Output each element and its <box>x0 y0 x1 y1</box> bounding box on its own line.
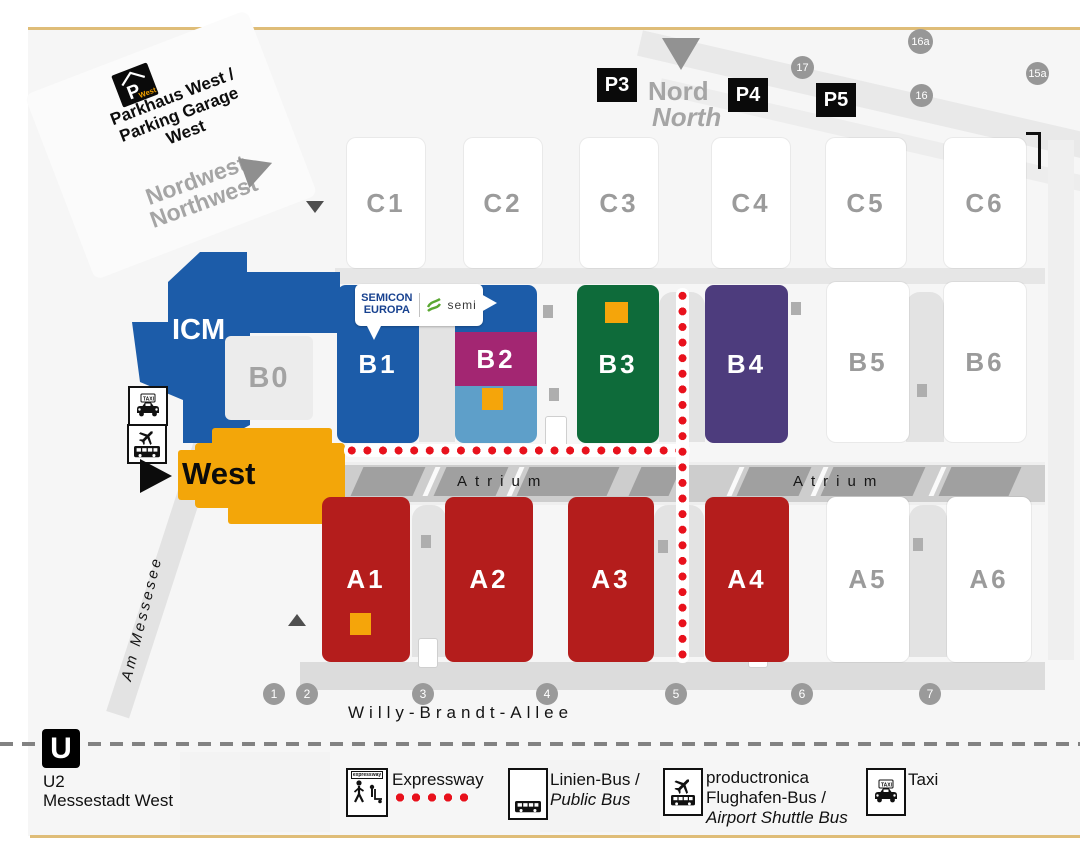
street-marker-5[interactable]: 5 <box>665 683 687 705</box>
hall-a6[interactable]: A6 <box>947 497 1031 662</box>
airplane-icon <box>673 777 693 794</box>
semicon-wordmark: SEMICON EUROPA <box>361 293 412 316</box>
north-arrow-icon <box>662 38 700 70</box>
hall-c3[interactable]: C3 <box>580 138 658 268</box>
street-marker-1[interactable]: 1 <box>263 683 285 705</box>
bus-icon <box>134 446 160 459</box>
airport-shuttle-legend-icon[interactable] <box>663 768 703 816</box>
hall-c2[interactable]: C2 <box>464 138 542 268</box>
public-bus-label-de: Linien-Bus / <box>550 770 640 790</box>
parking-badge-p4[interactable]: P4 <box>728 78 768 112</box>
gate-marker-16a[interactable]: 16a <box>908 29 933 54</box>
semi-swirl-icon <box>426 297 442 313</box>
street-marker-4[interactable]: 4 <box>536 683 558 705</box>
street-marker-6[interactable]: 6 <box>791 683 813 705</box>
pillar-decoration <box>658 540 668 553</box>
subway-logo[interactable]: U <box>42 729 80 768</box>
svg-text:TAXI: TAXI <box>143 397 155 403</box>
hall-b6[interactable]: B6 <box>944 282 1026 442</box>
event-marker-square-b2 <box>482 388 503 410</box>
expressway-figures <box>351 779 383 805</box>
pillar-decoration <box>917 384 927 397</box>
bus-icon <box>514 801 542 814</box>
cb-row-gap-band <box>335 268 1045 284</box>
expressway-legend-dots <box>392 792 472 803</box>
hall-a3[interactable]: A3 <box>568 497 654 662</box>
semi-wordmark: semi <box>448 298 477 312</box>
airplane-icon <box>137 429 157 445</box>
gate-marker-16[interactable]: 16 <box>910 84 933 107</box>
taxi-stand-icon[interactable]: TAXI <box>128 386 168 426</box>
street-willy-brandt-allee: Willy-Brandt-Allee <box>348 703 573 723</box>
logo-bubble-tail-right <box>481 294 497 312</box>
logo-bubble-tail-down <box>366 324 382 340</box>
pillar-decoration <box>549 388 559 401</box>
hall-gap-arch <box>906 292 944 442</box>
pillar-decoration <box>913 538 923 551</box>
hall-c6[interactable]: C6 <box>944 138 1026 268</box>
entrance-north-en: North <box>652 102 721 133</box>
atrium-panel <box>351 467 426 496</box>
street-marker-3[interactable]: 3 <box>412 683 434 705</box>
atrium-panel <box>939 467 1022 496</box>
hall-a2[interactable]: A2 <box>445 497 533 662</box>
pedestrian-icon <box>351 779 367 805</box>
parking-badge-p5[interactable]: P5 <box>816 83 856 117</box>
expressway-line-vertical <box>676 288 689 663</box>
facility-marker <box>418 638 438 668</box>
hall-c1[interactable]: C1 <box>347 138 425 268</box>
hall-b5[interactable]: B5 <box>827 282 909 442</box>
background-building <box>180 752 330 832</box>
public-bus-legend-icon[interactable] <box>508 768 548 820</box>
fairground-map: P West Parkhaus West / Parking Garage We… <box>0 0 1080 848</box>
west-building-bottom <box>228 506 336 524</box>
semicon-europa-logo: SEMICON EUROPA semi <box>355 284 483 326</box>
airport-bus-stop-icon[interactable] <box>127 424 167 464</box>
shuttle-label-en: Airport Shuttle Bus <box>706 808 848 828</box>
atrium-label-east: Atrium <box>793 473 884 490</box>
public-bus-label-en: Public Bus <box>550 790 630 810</box>
pillar-decoration <box>791 302 801 315</box>
hall-b2[interactable]: B2 <box>455 332 537 386</box>
subway-line-label: U2 <box>43 772 65 792</box>
street-marker-7[interactable]: 7 <box>919 683 941 705</box>
map-corner-mark <box>1026 132 1041 169</box>
atrium-panel <box>629 467 682 496</box>
hall-b4[interactable]: B4 <box>705 285 788 443</box>
west-arrow-icon <box>140 459 172 493</box>
small-down-arrow-icon <box>306 201 324 213</box>
expressway-legend-icon[interactable]: expressway <box>346 768 388 817</box>
icm-label: ICM <box>172 314 225 347</box>
parking-badge-p3[interactable]: P3 <box>597 68 637 102</box>
gate-marker-15a[interactable]: 15a <box>1026 62 1049 85</box>
shuttle-label-de: Flughafen-Bus / <box>706 788 826 808</box>
hall-c5[interactable]: C5 <box>826 138 906 268</box>
pillar-decoration <box>421 535 431 548</box>
expressway-line-horizontal <box>344 444 690 457</box>
hall-a5[interactable]: A5 <box>827 497 909 662</box>
pillar-decoration <box>543 305 553 318</box>
hall-gap-arch <box>412 505 446 657</box>
hall-c4[interactable]: C4 <box>712 138 790 268</box>
svg-text:TAXI: TAXI <box>881 783 893 789</box>
event-marker-square-b3 <box>605 302 628 323</box>
hall-a4[interactable]: A4 <box>705 497 789 662</box>
luggage-cart-icon <box>367 779 383 805</box>
atrium-label-west: Atrium <box>457 473 548 490</box>
expressway-legend-label: Expressway <box>392 770 484 790</box>
east-road-decoration <box>1048 140 1074 660</box>
logo-divider <box>419 293 420 317</box>
hall-gap-arch <box>909 505 947 657</box>
event-marker-square-a1 <box>350 613 371 635</box>
hall-a1[interactable]: A1 <box>322 497 410 662</box>
taxi-legend-label: Taxi <box>908 770 938 790</box>
gate-marker-17[interactable]: 17 <box>791 56 814 79</box>
subway-line-decoration <box>0 742 1080 746</box>
taxi-legend-icon[interactable]: TAXI <box>866 768 906 816</box>
subway-station-label: Messestadt West <box>43 791 173 811</box>
small-up-arrow-icon <box>288 614 306 626</box>
shuttle-label-brand: productronica <box>706 768 809 788</box>
bus-icon <box>670 795 696 807</box>
hall-b0[interactable]: B0 <box>225 336 313 420</box>
bottom-frame-line <box>30 835 1080 838</box>
street-marker-2[interactable]: 2 <box>296 683 318 705</box>
entrance-west-label[interactable]: West <box>182 456 256 492</box>
